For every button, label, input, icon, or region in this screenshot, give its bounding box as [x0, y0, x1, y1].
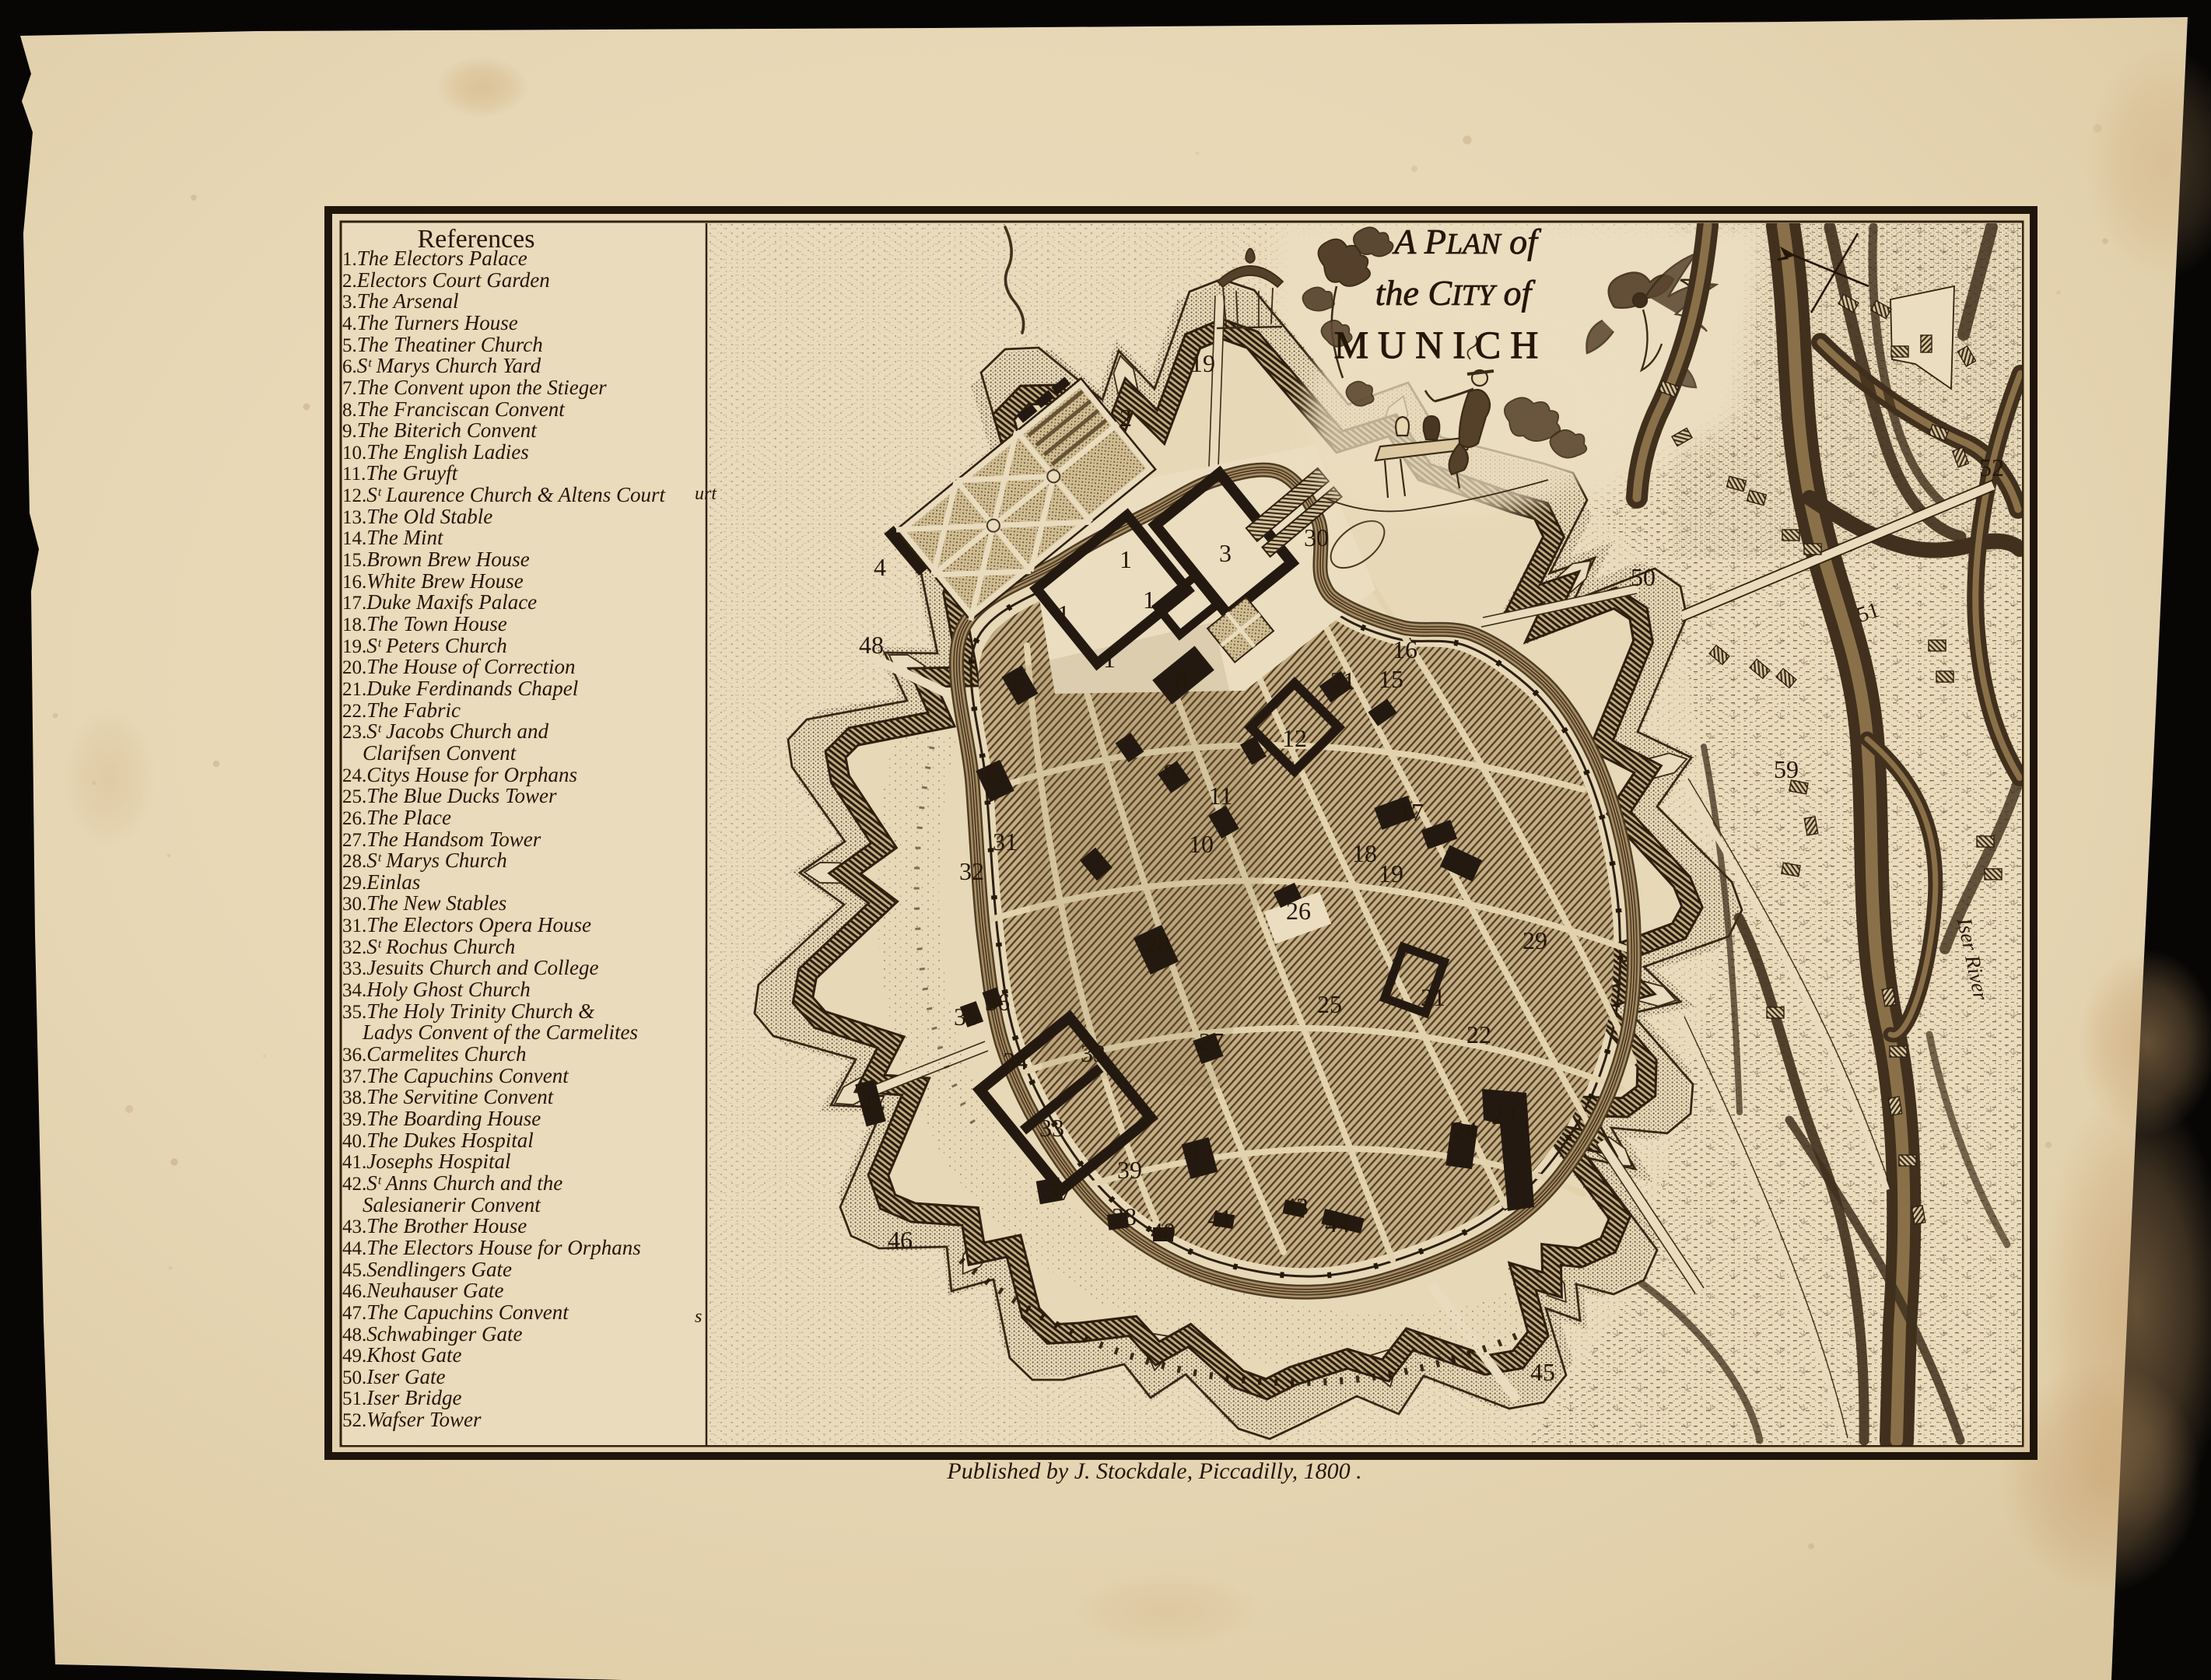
- svg-text:s: s: [695, 1307, 702, 1327]
- svg-text:34: 34: [1003, 1047, 1028, 1075]
- svg-text:1: 1: [1103, 645, 1116, 673]
- svg-text:49.Khost Gate: 49.Khost Gate: [342, 1343, 462, 1367]
- svg-text:25.The Blue Ducks Tower: 25.The Blue Ducks Tower: [342, 784, 557, 807]
- svg-text:15.Brown Brew House: 15.Brown Brew House: [342, 548, 530, 571]
- svg-text:22.The Fabric: 22.The Fabric: [342, 698, 461, 722]
- svg-text:6: 6: [985, 758, 997, 786]
- svg-text:48: 48: [859, 631, 884, 659]
- svg-text:Published by J. Stockdale, Pic: Published by J. Stockdale, Piccadilly, 1…: [946, 1458, 1361, 1484]
- svg-text:6.Sᵗ Marys Church Yard: 6.Sᵗ Marys Church Yard: [342, 354, 541, 377]
- svg-text:33: 33: [1039, 1114, 1064, 1142]
- svg-text:45.Sendlingers Gate: 45.Sendlingers Gate: [342, 1258, 512, 1281]
- svg-text:Clarifsen Convent: Clarifsen Convent: [363, 741, 517, 765]
- svg-text:Salesianerir Convent: Salesianerir Convent: [363, 1193, 541, 1216]
- svg-text:44.The Electors House for Orph: 44.The Electors House for Orphans: [342, 1236, 641, 1259]
- svg-text:urt: urt: [695, 484, 717, 504]
- svg-text:40.The Dukes Hospital: 40.The Dukes Hospital: [342, 1129, 534, 1152]
- svg-text:4: 4: [874, 553, 886, 581]
- svg-text:43: 43: [1284, 1192, 1309, 1220]
- svg-text:27: 27: [1199, 1027, 1224, 1055]
- svg-text:29.Einlas: 29.Einlas: [342, 870, 420, 894]
- svg-text:10: 10: [1189, 830, 1214, 858]
- svg-text:15: 15: [1379, 665, 1403, 693]
- svg-text:2: 2: [1120, 404, 1132, 432]
- svg-text:19: 19: [1379, 859, 1403, 887]
- svg-text:MUNICH: MUNICH: [1334, 323, 1548, 366]
- svg-text:4.The Turners House: 4.The Turners House: [342, 311, 518, 334]
- svg-text:41.Josephs Hospital: 41.Josephs Hospital: [342, 1150, 511, 1173]
- svg-text:52: 52: [1979, 453, 2004, 481]
- svg-text:35: 35: [954, 1003, 979, 1031]
- svg-text:1: 1: [1057, 600, 1070, 628]
- svg-text:Ladys Convent of the Carmelite: Ladys Convent of the Carmelites: [362, 1020, 638, 1044]
- svg-text:47: 47: [860, 1089, 885, 1117]
- svg-text:5.The Theatiner Church: 5.The Theatiner Church: [342, 333, 543, 356]
- svg-text:16.White Brew House: 16.White Brew House: [342, 569, 524, 593]
- svg-text:11: 11: [1209, 782, 1233, 810]
- svg-text:26: 26: [1286, 897, 1311, 925]
- svg-text:24: 24: [1452, 1116, 1477, 1144]
- svg-text:11.The Gruyft: 11.The Gruyft: [342, 461, 459, 485]
- svg-text:7.The Convent upon the Stieger: 7.The Convent upon the Stieger: [342, 376, 607, 399]
- svg-text:46: 46: [888, 1226, 913, 1254]
- svg-text:20.The House of Correction: 20.The House of Correction: [342, 655, 575, 678]
- svg-text:1: 1: [1120, 545, 1132, 573]
- svg-text:45: 45: [1530, 1358, 1555, 1386]
- svg-text:38.The Servitine Convent: 38.The Servitine Convent: [342, 1085, 555, 1108]
- svg-text:3.The Arsenal: 3.The Arsenal: [342, 289, 459, 313]
- svg-text:12.Sᵗ Laurence Church & Altens: 12.Sᵗ Laurence Church & Altens Court: [342, 483, 667, 506]
- svg-text:44: 44: [1325, 1209, 1350, 1237]
- svg-text:37: 37: [1047, 1178, 1072, 1206]
- svg-text:24.Citys House for Orphans: 24.Citys House for Orphans: [342, 763, 577, 786]
- svg-text:19.Sᵗ Peters Church: 19.Sᵗ Peters Church: [342, 634, 507, 657]
- svg-text:30: 30: [1304, 523, 1329, 551]
- svg-text:43.The Brother House: 43.The Brother House: [342, 1214, 527, 1237]
- svg-text:1.The Electors Palace: 1.The Electors Palace: [342, 247, 527, 270]
- svg-text:50: 50: [1631, 563, 1656, 591]
- svg-text:18: 18: [1352, 839, 1377, 867]
- svg-text:37.The Capuchins Convent: 37.The Capuchins Convent: [342, 1064, 569, 1087]
- svg-text:33: 33: [1081, 1039, 1105, 1067]
- svg-text:19: 19: [1190, 349, 1215, 377]
- svg-text:5: 5: [1012, 667, 1025, 695]
- svg-text:30.The New Stables: 30.The New Stables: [342, 891, 506, 915]
- svg-text:the CITY of: the CITY of: [1375, 273, 1536, 313]
- svg-text:29: 29: [1522, 926, 1547, 954]
- svg-text:12: 12: [1282, 724, 1307, 752]
- svg-text:2.Electors Court Garden: 2.Electors Court Garden: [342, 268, 550, 292]
- svg-text:27.The Handsom Tower: 27.The Handsom Tower: [342, 828, 541, 851]
- svg-text:23.Sᵗ Jacobs Church and: 23.Sᵗ Jacobs Church and: [342, 719, 549, 743]
- svg-text:1: 1: [1143, 586, 1155, 614]
- svg-text:28.Sᵗ Marys Church: 28.Sᵗ Marys Church: [342, 849, 507, 872]
- svg-text:35.The Holy Trinity Church &: 35.The Holy Trinity Church &: [342, 999, 594, 1023]
- svg-text:21: 21: [1330, 667, 1355, 695]
- svg-text:32: 32: [959, 857, 984, 885]
- svg-text:26.The Place: 26.The Place: [342, 806, 451, 829]
- svg-text:31: 31: [993, 828, 1018, 856]
- svg-text:17: 17: [1399, 798, 1424, 826]
- svg-text:36.Carmelites Church: 36.Carmelites Church: [342, 1042, 527, 1066]
- svg-text:41: 41: [1207, 1204, 1232, 1232]
- svg-text:21: 21: [1421, 983, 1445, 1011]
- svg-text:9.The Biterich Convent: 9.The Biterich Convent: [342, 418, 538, 442]
- svg-text:9: 9: [1164, 758, 1176, 786]
- svg-text:3: 3: [1219, 539, 1232, 567]
- svg-text:42.Sᵗ Anns Church and the: 42.Sᵗ Anns Church and the: [342, 1171, 562, 1195]
- svg-text:10.The English Ladies: 10.The English Ladies: [342, 440, 529, 464]
- svg-text:14.The Mint: 14.The Mint: [342, 526, 444, 549]
- svg-text:50.Iser Gate: 50.Iser Gate: [342, 1365, 445, 1388]
- svg-text:32.Sᵗ Rochus Church: 32.Sᵗ Rochus Church: [342, 935, 515, 958]
- svg-text:A PLAN of: A PLAN of: [1392, 222, 1542, 261]
- svg-text:48.Schwabinger Gate: 48.Schwabinger Gate: [342, 1322, 522, 1346]
- svg-text:39: 39: [1117, 1156, 1142, 1184]
- svg-text:36: 36: [985, 988, 1010, 1016]
- svg-text:13.The Old Stable: 13.The Old Stable: [342, 505, 492, 528]
- svg-text:28: 28: [1145, 929, 1170, 957]
- svg-text:42: 42: [1188, 1139, 1213, 1167]
- svg-text:17.Duke Maxifs Palace: 17.Duke Maxifs Palace: [342, 590, 537, 614]
- svg-text:52.Wafser Tower: 52.Wafser Tower: [342, 1408, 482, 1431]
- svg-text:8: 8: [1175, 665, 1187, 693]
- svg-text:23: 23: [1491, 1101, 1516, 1129]
- svg-text:47.The Capuchins Convent: 47.The Capuchins Convent: [342, 1300, 569, 1324]
- svg-text:59: 59: [1774, 755, 1799, 783]
- svg-text:33.Jesuits Church and College: 33.Jesuits Church and College: [342, 956, 598, 979]
- svg-text:34.Holy Ghost Church: 34.Holy Ghost Church: [342, 978, 531, 1001]
- svg-text:21.Duke Ferdinands Chapel: 21.Duke Ferdinands Chapel: [342, 677, 578, 700]
- svg-text:46.Neuhauser Gate: 46.Neuhauser Gate: [342, 1279, 503, 1302]
- svg-text:51.Iser Bridge: 51.Iser Bridge: [342, 1386, 461, 1409]
- svg-text:16: 16: [1393, 635, 1417, 663]
- svg-text:22: 22: [1466, 1020, 1491, 1048]
- svg-text:39.The Boarding House: 39.The Boarding House: [342, 1107, 541, 1130]
- svg-text:18.The Town House: 18.The Town House: [342, 612, 507, 635]
- svg-text:8.The Franciscan Convent: 8.The Franciscan Convent: [342, 397, 566, 421]
- svg-text:25: 25: [1317, 990, 1342, 1018]
- svg-text:40: 40: [1151, 1217, 1176, 1245]
- svg-text:31.The Electors Opera House: 31.The Electors Opera House: [342, 913, 591, 936]
- svg-text:38: 38: [1112, 1202, 1137, 1230]
